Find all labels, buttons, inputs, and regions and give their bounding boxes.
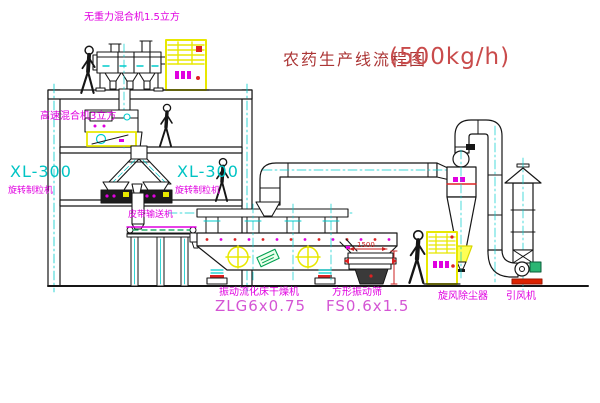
spring-foot-left	[207, 270, 227, 284]
granulator-left	[101, 182, 132, 203]
label-sieve-model: FS0.6x1.5	[326, 299, 409, 314]
exhaust-duct	[256, 163, 450, 216]
label-top-mixer: 无重力混合机1.5立方	[84, 13, 180, 23]
label-granulator-left-name: 旋转制粒机	[8, 187, 53, 196]
label-second-floor-mixer: 高速混合机3立方	[40, 112, 116, 122]
control-cabinet-1	[163, 40, 209, 90]
worker-figure-ground	[410, 231, 425, 283]
diagram-capacity: (500kg/h)	[389, 46, 510, 69]
worker-figure-2f	[160, 104, 172, 146]
cad-flow-diagram: 农药生产线流程图 (500kg/h) 无重力混合机1.5立方 高速混合机3立方 …	[0, 0, 600, 403]
dimension-1500: 1500	[357, 242, 375, 249]
no-gravity-mixer	[93, 41, 173, 91]
label-granulator-mid-model: XL-300	[177, 164, 239, 180]
label-belt-conveyor: 皮带输送机	[128, 211, 173, 220]
label-cyclone: 旋风除尘器	[438, 292, 488, 302]
granulator-right	[141, 182, 172, 203]
label-granulator-left-model: XL-300	[10, 164, 72, 180]
label-fan: 引风机	[506, 292, 536, 302]
control-cabinet-2	[424, 232, 460, 284]
belt-conveyor	[127, 227, 202, 286]
label-dryer-model: ZLG6x0.75	[215, 299, 306, 314]
second-floor-mixer-outlet-box	[87, 132, 136, 146]
induced-draft-fan	[512, 250, 542, 284]
label-granulator-mid-name: 旋转制粒机	[175, 187, 220, 196]
spring-foot-right	[315, 270, 335, 284]
